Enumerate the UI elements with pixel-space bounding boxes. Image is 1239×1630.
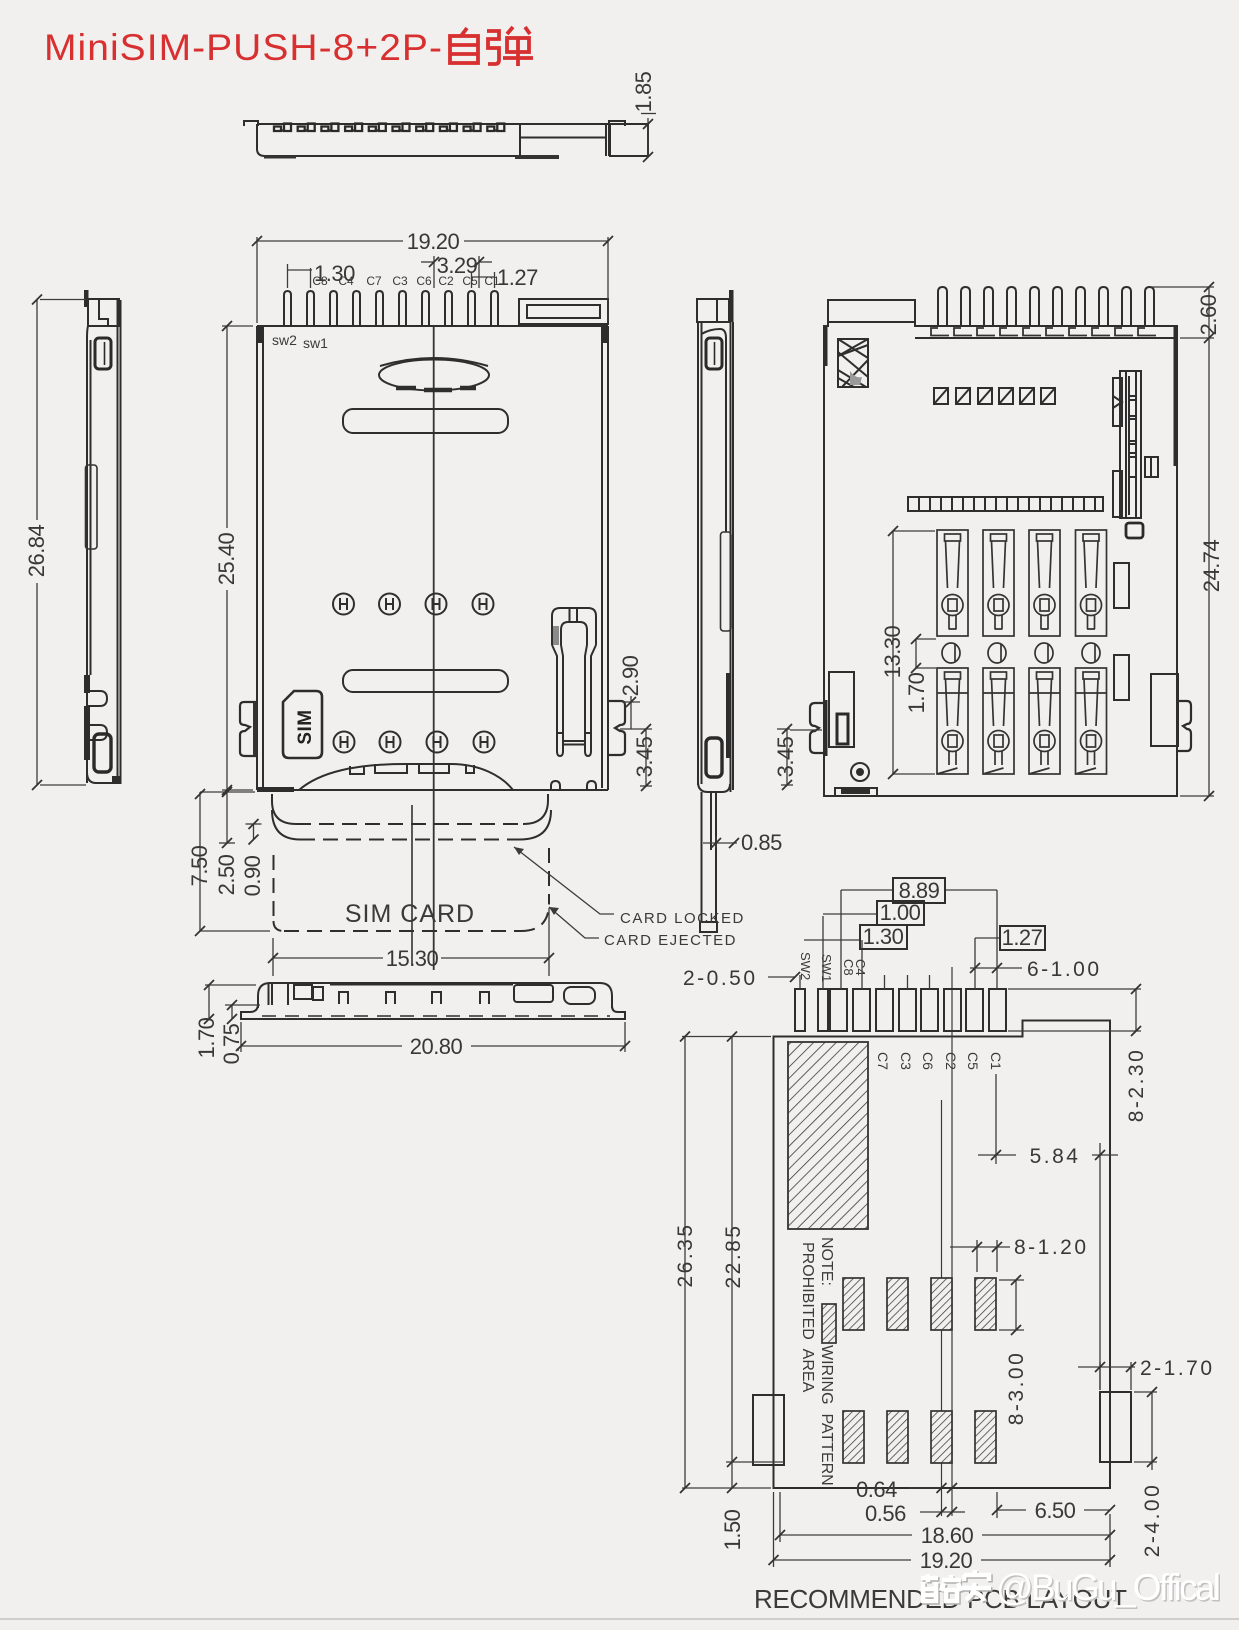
svg-text:C3: C3: [392, 274, 408, 288]
svg-text:CARD LOCKED: CARD LOCKED: [620, 910, 745, 927]
svg-text:7.50: 7.50: [187, 845, 212, 886]
svg-text:8-1.20: 8-1.20: [1014, 1236, 1089, 1259]
svg-text:1.00: 1.00: [880, 900, 921, 925]
svg-text:1.70: 1.70: [904, 672, 929, 713]
svg-text:6.50: 6.50: [1035, 1498, 1076, 1523]
svg-text:C7: C7: [875, 1052, 891, 1070]
svg-text:8-3.00: 8-3.00: [1005, 1351, 1028, 1426]
svg-text:8-2.30: 8-2.30: [1125, 1048, 1148, 1123]
svg-text:0.56: 0.56: [865, 1501, 906, 1526]
svg-text:0.85: 0.85: [741, 830, 782, 855]
svg-text:0.90: 0.90: [240, 855, 265, 896]
svg-text:1.27: 1.27: [1002, 925, 1043, 950]
svg-text:sw1: sw1: [303, 335, 328, 351]
svg-text:2.60: 2.60: [1196, 294, 1221, 335]
svg-text:2.50: 2.50: [214, 854, 239, 895]
svg-text:1.27: 1.27: [497, 265, 538, 290]
svg-text:1.85: 1.85: [631, 71, 656, 112]
svg-text:13.30: 13.30: [880, 625, 905, 678]
svg-text:PROHIBITED AREA: PROHIBITED AREA: [799, 1242, 816, 1393]
svg-text:2-0.50: 2-0.50: [683, 967, 758, 990]
svg-text:3.45: 3.45: [773, 736, 798, 777]
svg-text:C2: C2: [438, 274, 454, 288]
svg-text:C7: C7: [366, 274, 382, 288]
svg-text:18.60: 18.60: [921, 1523, 974, 1548]
svg-text:3.45: 3.45: [632, 736, 657, 777]
svg-text:C1: C1: [988, 1052, 1004, 1070]
svg-text:1.50: 1.50: [720, 1509, 745, 1550]
svg-text:C5: C5: [965, 1052, 981, 1070]
svg-text:6-1.00: 6-1.00: [1027, 958, 1102, 981]
svg-text:1.70: 1.70: [194, 1017, 219, 1058]
svg-text:C3: C3: [898, 1052, 914, 1070]
svg-text:C4: C4: [338, 274, 354, 288]
svg-text:C8: C8: [312, 274, 328, 288]
svg-text:NOTE:: NOTE:: [818, 1237, 835, 1286]
svg-text:20.80: 20.80: [410, 1034, 463, 1059]
svg-text:2-4.00: 2-4.00: [1141, 1483, 1164, 1558]
svg-text:19.20: 19.20: [920, 1548, 973, 1573]
svg-text:2-1.70: 2-1.70: [1140, 1357, 1215, 1380]
svg-text:@BuGu_Offical: @BuGu_Offical: [996, 1567, 1221, 1608]
svg-text:5.84: 5.84: [1030, 1145, 1081, 1168]
svg-text:C6: C6: [416, 274, 432, 288]
svg-text:C5: C5: [462, 274, 478, 288]
svg-text:SIM: SIM: [295, 709, 316, 744]
svg-text:sw2: sw2: [272, 332, 297, 348]
svg-text:22.85: 22.85: [722, 1223, 745, 1288]
svg-text:19.20: 19.20: [407, 229, 460, 254]
svg-text:C1: C1: [484, 274, 500, 288]
svg-text:CARD EJECTED: CARD EJECTED: [604, 932, 737, 949]
svg-text:0.75: 0.75: [219, 1023, 244, 1064]
svg-text:25.40: 25.40: [214, 532, 239, 585]
svg-text:1.30: 1.30: [863, 924, 904, 949]
svg-text:26.84: 26.84: [24, 524, 49, 577]
svg-text:C6: C6: [920, 1052, 936, 1070]
svg-text:C4: C4: [853, 959, 868, 976]
svg-text:WIRING PATTERN: WIRING PATTERN: [818, 1345, 835, 1486]
svg-text:24.74: 24.74: [1199, 539, 1224, 592]
svg-text:0.64: 0.64: [856, 1477, 897, 1502]
svg-text:2.90: 2.90: [618, 655, 643, 696]
svg-text:MiniSIM-PUSH-8+2P-: MiniSIM-PUSH-8+2P-: [44, 27, 443, 68]
svg-text:SW1: SW1: [819, 954, 834, 982]
svg-text:15.30: 15.30: [386, 946, 439, 971]
svg-text:SIM CARD: SIM CARD: [345, 900, 475, 928]
svg-text:26.35: 26.35: [674, 1222, 697, 1287]
svg-text:C2: C2: [943, 1052, 959, 1070]
